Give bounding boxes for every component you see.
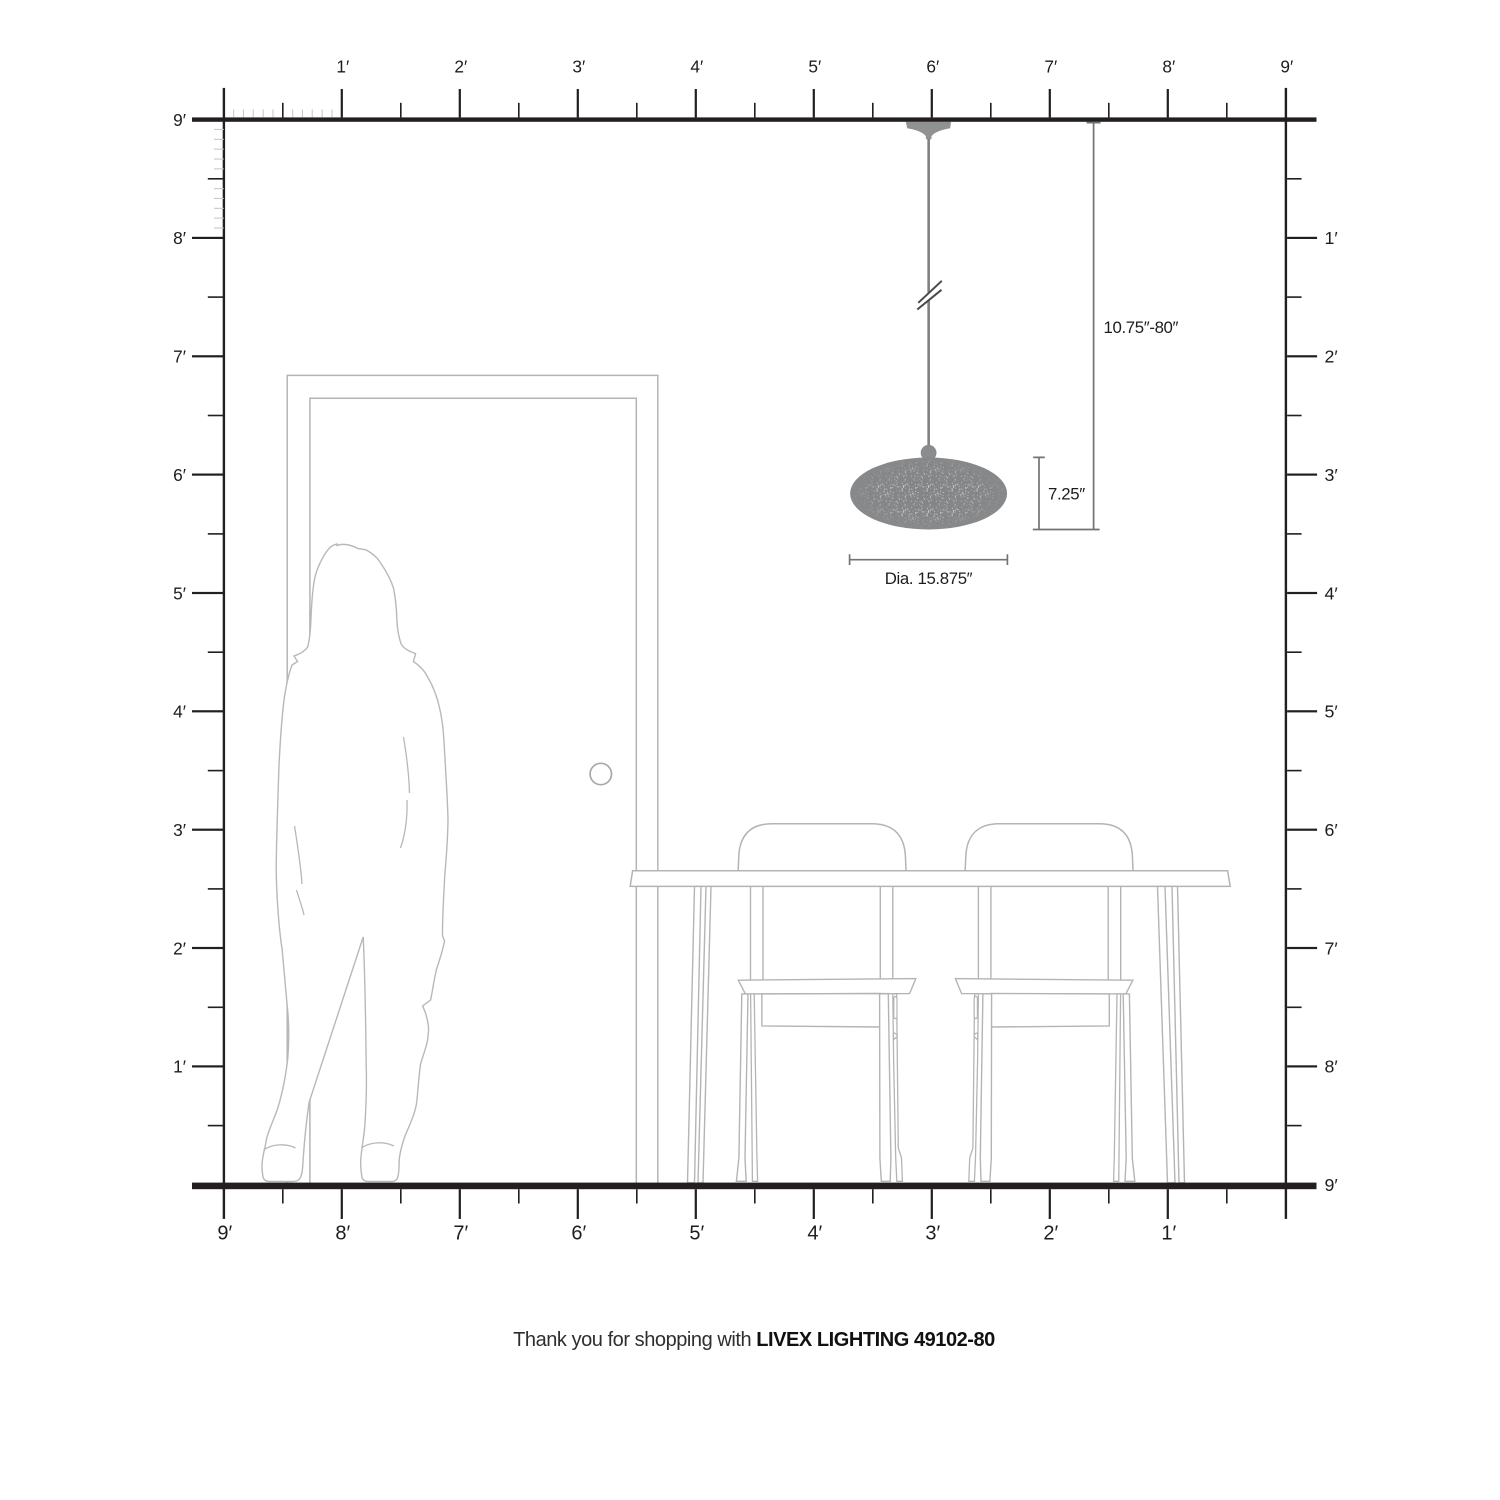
svg-text:2′: 2′: [173, 938, 186, 958]
svg-text:7′: 7′: [1325, 938, 1338, 958]
svg-text:3′: 3′: [925, 1223, 940, 1245]
svg-text:5′: 5′: [173, 583, 186, 603]
svg-text:Thank you for shopping with LI: Thank you for shopping with LIVEX LIGHTI…: [513, 1329, 995, 1351]
svg-text:9′: 9′: [217, 1223, 232, 1245]
svg-text:3′: 3′: [572, 57, 585, 77]
svg-text:4′: 4′: [173, 702, 186, 722]
svg-text:9′: 9′: [1280, 57, 1293, 77]
svg-text:1′: 1′: [336, 57, 349, 77]
svg-text:2′: 2′: [1325, 347, 1338, 367]
svg-text:2′: 2′: [454, 57, 467, 77]
svg-text:2′: 2′: [1043, 1223, 1058, 1245]
svg-text:7′: 7′: [173, 347, 186, 367]
svg-text:9′: 9′: [1325, 1175, 1338, 1195]
svg-text:6′: 6′: [571, 1223, 586, 1245]
svg-text:5′: 5′: [808, 57, 821, 77]
svg-text:7′: 7′: [1044, 57, 1057, 77]
svg-text:4′: 4′: [1325, 583, 1338, 603]
svg-text:8′: 8′: [173, 228, 186, 248]
svg-text:6′: 6′: [926, 57, 939, 77]
svg-text:8′: 8′: [335, 1223, 350, 1245]
svg-text:8′: 8′: [1325, 1057, 1338, 1077]
svg-text:8′: 8′: [1162, 57, 1175, 77]
svg-text:10.75″-80″: 10.75″-80″: [1104, 318, 1179, 337]
svg-text:Dia. 15.875″: Dia. 15.875″: [885, 569, 973, 588]
svg-text:4′: 4′: [690, 57, 703, 77]
svg-text:6′: 6′: [173, 465, 186, 485]
svg-text:4′: 4′: [807, 1223, 822, 1245]
svg-text:1′: 1′: [1161, 1223, 1176, 1245]
svg-text:1′: 1′: [173, 1057, 186, 1077]
svg-text:3′: 3′: [173, 820, 186, 840]
svg-text:9′: 9′: [173, 110, 186, 130]
svg-text:7′: 7′: [453, 1223, 468, 1245]
svg-text:7.25″: 7.25″: [1048, 485, 1085, 504]
svg-text:3′: 3′: [1325, 465, 1338, 485]
svg-text:6′: 6′: [1325, 820, 1338, 840]
svg-text:5′: 5′: [689, 1223, 704, 1245]
svg-text:1′: 1′: [1325, 228, 1338, 248]
svg-text:5′: 5′: [1325, 702, 1338, 722]
